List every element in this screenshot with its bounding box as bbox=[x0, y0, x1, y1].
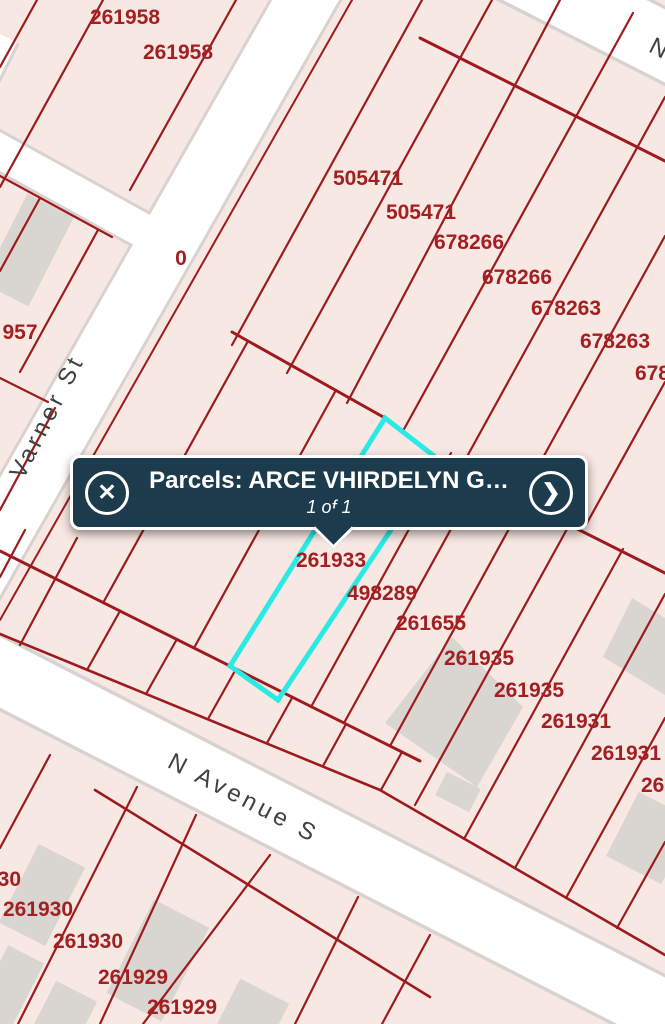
popup-text: Parcels: ARCE VHIRDELYN G… 1 of 1 bbox=[139, 467, 519, 518]
parcel-label: 261930 bbox=[53, 930, 123, 953]
parcel-label: 678266 bbox=[482, 266, 552, 289]
parcel-popup: ✕ Parcels: ARCE VHIRDELYN G… 1 of 1 ❯ bbox=[70, 455, 588, 530]
chevron-right-circle-icon: ❯ bbox=[541, 481, 560, 504]
parcel-label: 261958 bbox=[143, 41, 213, 64]
parcel-label: 678266 bbox=[434, 231, 504, 254]
popup-title: Parcels: ARCE VHIRDELYN G… bbox=[139, 467, 519, 496]
popup-next-button[interactable]: ❯ bbox=[529, 471, 573, 515]
parcel-label: 505471 bbox=[333, 167, 403, 190]
parcel-label: 678263 bbox=[580, 330, 650, 353]
x-circle-icon: ✕ bbox=[97, 481, 116, 504]
parcel-label: 0 bbox=[175, 247, 187, 270]
parcel-label: 261655 bbox=[396, 612, 466, 635]
parcel-label: 678263 bbox=[635, 362, 665, 385]
parcel-label: 261930 bbox=[0, 868, 21, 891]
parcel-label: 957 bbox=[2, 321, 37, 344]
parcel-label: 261958 bbox=[90, 6, 160, 29]
parcel-label: 498289 bbox=[347, 582, 417, 605]
parcel-label: 261931 bbox=[541, 710, 611, 733]
popup-close-button[interactable]: ✕ bbox=[85, 471, 129, 515]
parcel-label: 261931 bbox=[641, 774, 665, 797]
parcel-label: 261930 bbox=[3, 898, 73, 921]
parcel-label: 261929 bbox=[147, 996, 217, 1019]
parcel-label: 678263 bbox=[531, 297, 601, 320]
parcel-label: 261929 bbox=[98, 966, 168, 989]
parcel-label: 261933 bbox=[296, 549, 366, 572]
parcel-label: 261935 bbox=[444, 647, 514, 670]
parcel-label: 261935 bbox=[494, 679, 564, 702]
parcel-label: 505471 bbox=[386, 201, 456, 224]
parcel-label: 261931 bbox=[591, 742, 661, 765]
